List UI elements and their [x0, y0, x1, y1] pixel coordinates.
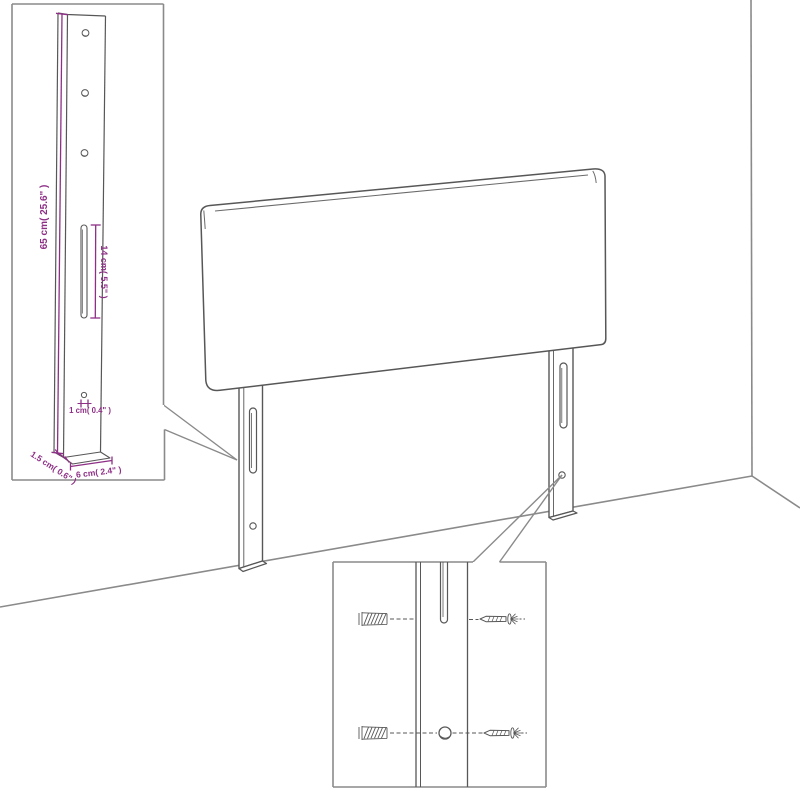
headboard-diagram-svg: 65 cm( 25.6" ) 14 cm( 5.5" ) 1 cm( 0.4" …: [0, 0, 800, 800]
headboard-panel-outline: [201, 169, 606, 391]
dimension-label-slot-length: 14 cm( 5.5" ): [99, 245, 109, 298]
left-leg-slot: [250, 408, 257, 473]
inset-leg-slot: [81, 225, 87, 318]
floor-line-right: [752, 476, 800, 508]
dimension-label-hole-diameter: 1 cm( 0.4" ): [69, 406, 111, 415]
left-leg-hole: [250, 523, 256, 529]
detail-inset-leg: 65 cm( 25.6" ) 14 cm( 5.5" ) 1 cm( 0.4" …: [12, 4, 165, 486]
callout-line: [473, 475, 562, 562]
wall-corner-line: [751, 0, 752, 476]
detail-inset-mounting: [333, 562, 546, 787]
dimension-label-leg-height: 65 cm( 25.6" ): [39, 185, 50, 250]
left-leg: [239, 379, 267, 572]
right-leg-slot: [560, 363, 567, 428]
callout-line: [164, 405, 238, 460]
right-leg: [549, 341, 577, 520]
callout-line: [165, 430, 238, 461]
callout-lines-bottom-inset: [473, 475, 562, 562]
inset-mount-background: [333, 562, 546, 787]
left-leg-front-face: [239, 379, 263, 569]
callout-lines-left-inset: [164, 405, 238, 460]
diagram-stage: 65 cm( 25.6" ) 14 cm( 5.5" ) 1 cm( 0.4" …: [0, 0, 800, 800]
headboard-panel: [201, 169, 606, 391]
